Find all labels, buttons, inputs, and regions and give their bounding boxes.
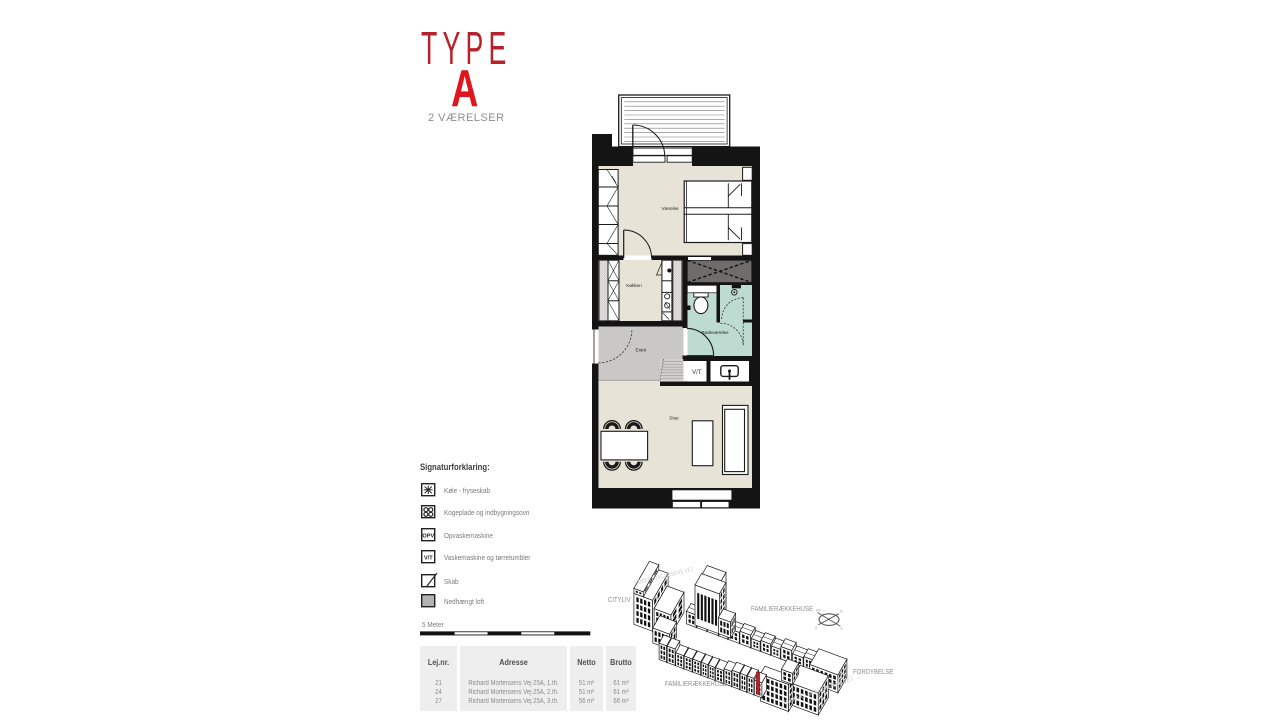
svg-text:Entré: Entré <box>636 348 647 353</box>
svg-text:Stue: Stue <box>669 416 679 421</box>
svg-text:Køkken: Køkken <box>626 283 642 288</box>
svg-text:OPV: OPV <box>422 534 434 540</box>
svg-text:Værelse: Værelse <box>661 206 679 211</box>
svg-text:V/T: V/T <box>424 556 433 562</box>
svg-text:Badeværelse: Badeværelse <box>701 330 729 335</box>
svg-text:V/T: V/T <box>692 370 702 376</box>
